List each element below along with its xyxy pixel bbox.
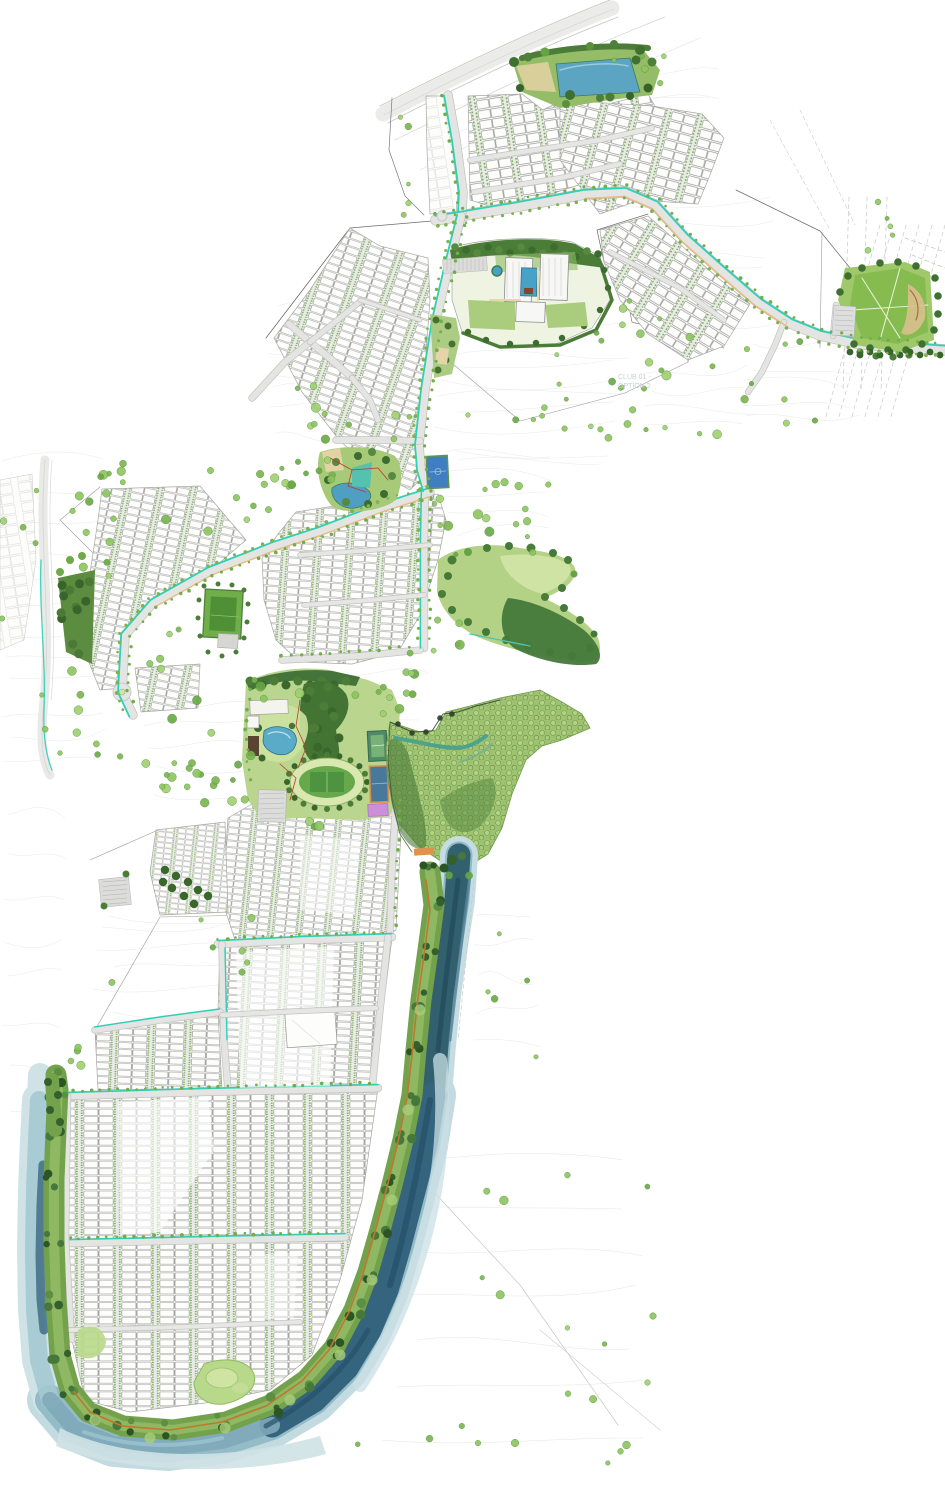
- svg-text:CLUB 01 -: CLUB 01 -: [618, 374, 651, 381]
- svg-text:OPTION 2: OPTION 2: [618, 383, 651, 390]
